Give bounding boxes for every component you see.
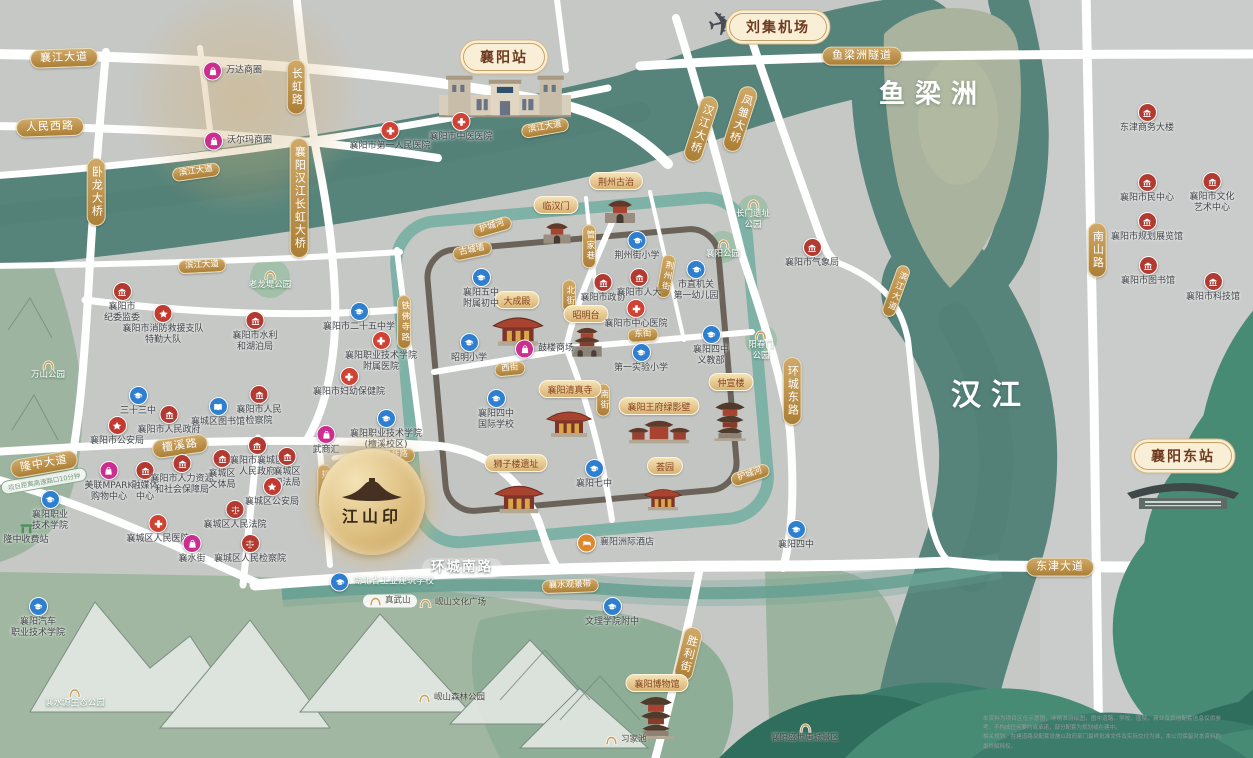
poi-label: 鼓楼商场 bbox=[538, 343, 574, 354]
poi-label: 市直机关 第一幼儿园 bbox=[673, 280, 718, 303]
gov-icon bbox=[247, 436, 266, 455]
shop-icon bbox=[203, 62, 222, 81]
poi-label: 襄阳汽车 职业技术学院 bbox=[11, 617, 65, 640]
poi-marker[interactable]: 襄阳市公安局 bbox=[90, 416, 144, 447]
road-label: 南山路 bbox=[1088, 223, 1107, 278]
park-icon bbox=[263, 269, 276, 280]
poi-label: 第一实验小学 bbox=[614, 363, 668, 374]
poi-marker[interactable]: 襄阳市人大 bbox=[616, 268, 661, 299]
park-label: 岘山文化广场 bbox=[435, 597, 486, 608]
poi-label: 襄阳市科技馆 bbox=[1186, 292, 1240, 303]
poi-marker[interactable]: 襄阳四中 国际学校 bbox=[478, 389, 514, 432]
poi-label: 文理学院附中 bbox=[585, 617, 639, 628]
road-label: 滨江大道 bbox=[171, 162, 220, 182]
poi-marker[interactable]: 襄阳市水利 和湖泊局 bbox=[232, 311, 277, 354]
poi-label: 美联MPARK 购物中心 bbox=[85, 481, 134, 504]
poi-marker[interactable]: 襄阳洲际酒店 bbox=[577, 534, 654, 553]
poi-label: 襄阳职业技术学院 (檀溪校区) bbox=[350, 429, 422, 452]
gov-icon bbox=[172, 454, 191, 473]
landmark-label[interactable]: 襄阳清真寺 bbox=[538, 380, 601, 398]
poi-label: 襄阳七中 bbox=[576, 479, 612, 490]
road-label: 滨江大道 bbox=[178, 258, 227, 274]
poi-marker[interactable]: 武商汇 bbox=[312, 425, 339, 456]
landmark-building bbox=[491, 477, 547, 516]
park-marker[interactable]: 岘山文化广场 bbox=[419, 597, 486, 608]
park-icon bbox=[369, 595, 382, 606]
poi-label: 襄城区人民法院 bbox=[203, 520, 266, 531]
landmark-label[interactable]: 临汉门 bbox=[533, 196, 578, 214]
park-label: 阳春门 公园 bbox=[748, 340, 774, 362]
poi-marker[interactable]: 沃尔玛商圈 bbox=[204, 132, 272, 151]
park-label: 老龙堤公园 bbox=[249, 280, 292, 291]
landmark-building bbox=[600, 193, 640, 223]
road-label: 东津大道 bbox=[1026, 558, 1094, 577]
station-label[interactable]: 襄阳站 bbox=[463, 43, 545, 71]
gov-icon bbox=[212, 449, 231, 468]
hospital-icon bbox=[626, 299, 645, 318]
school-icon bbox=[471, 268, 490, 287]
poi-marker[interactable]: 襄阳四中 bbox=[778, 520, 814, 551]
poi-label: 襄阳市妇幼保健院 bbox=[313, 387, 385, 398]
poi-marker[interactable]: 隆中收费站 bbox=[3, 523, 48, 546]
court-icon bbox=[240, 534, 259, 553]
gov-icon bbox=[629, 268, 648, 287]
hotel-icon bbox=[577, 534, 596, 553]
park-icon bbox=[746, 198, 759, 209]
park-label: 襄阳公园 bbox=[706, 249, 740, 260]
poi-label: 荆州街小学 bbox=[614, 251, 659, 262]
school-icon bbox=[786, 520, 805, 539]
poi-label: 东津商务大楼 bbox=[1120, 123, 1174, 134]
shop-icon bbox=[100, 461, 119, 480]
poi-label: 襄阳市第一人民医院 bbox=[349, 141, 430, 152]
gov-icon bbox=[159, 405, 178, 424]
poi-marker[interactable]: 荆州街小学 bbox=[614, 231, 659, 262]
poi-label: 万达商圈 bbox=[226, 65, 262, 76]
landmark-building bbox=[631, 689, 681, 739]
poi-label: 襄阳市中心医院 bbox=[604, 319, 667, 330]
landmark-label[interactable]: 狮子楼遗址 bbox=[484, 454, 547, 472]
road-label: 古城墙 bbox=[451, 240, 493, 262]
gov-icon bbox=[112, 282, 131, 301]
school-icon bbox=[459, 333, 478, 352]
park-label: 岘山森林公园 bbox=[434, 692, 485, 703]
school-icon bbox=[349, 302, 368, 321]
hospital-icon bbox=[371, 331, 390, 350]
school-icon bbox=[376, 409, 395, 428]
poi-label: 襄阳市民中心 bbox=[1120, 193, 1174, 204]
gov-icon bbox=[1202, 172, 1221, 191]
poi-label: 湖北省工业建筑学校 bbox=[353, 576, 434, 587]
road-label: 卧龙大桥 bbox=[87, 158, 106, 226]
park-marker[interactable]: 岘山森林公园 bbox=[418, 692, 485, 703]
station-label[interactable]: 刘集机场 bbox=[729, 13, 827, 41]
poi-label: 襄阳市公安局 bbox=[90, 436, 144, 447]
poi-marker[interactable]: 襄阳市人力资源 和社会保障局 bbox=[150, 454, 213, 497]
road-label: 鱼梁洲隧道 bbox=[822, 47, 902, 66]
park-marker[interactable]: 老龙堤公园 bbox=[249, 269, 292, 291]
toll-icon bbox=[19, 523, 33, 534]
school-icon bbox=[330, 573, 349, 592]
park-icon bbox=[419, 597, 432, 608]
poi-label: 襄阳市水利 和湖泊局 bbox=[232, 331, 277, 354]
park-label: 万山公园 bbox=[31, 370, 65, 381]
poi-label: 襄阳市图书馆 bbox=[1121, 276, 1175, 287]
disclaimer: 本资料为项目区位示意图，非精准测绘图，图中道路、学校、医院、商业及其他配套信息仅… bbox=[983, 715, 1221, 752]
station-label[interactable]: 襄阳东站 bbox=[1134, 442, 1232, 470]
park-icon bbox=[798, 722, 811, 733]
park-marker[interactable]: 阳春门 公园 bbox=[748, 329, 774, 362]
poi-marker[interactable]: 襄阳五中 附属初中 bbox=[463, 268, 499, 311]
poi-marker[interactable]: 襄阳市科技馆 bbox=[1186, 272, 1240, 303]
marker-layer: 襄江大道人民西路长虹路卧龙大桥襄阳汉江长虹大桥滨江大道滨江大道滨江大道滨江大道汉… bbox=[0, 0, 1253, 758]
school-icon bbox=[40, 490, 59, 509]
gov-icon bbox=[245, 311, 264, 330]
poi-marker[interactable]: 美联MPARK 购物中心 bbox=[85, 461, 134, 504]
water-label: 汉江 bbox=[951, 370, 1031, 414]
poi-marker[interactable]: 襄阳职业技术学院 (檀溪校区) bbox=[350, 409, 422, 452]
gov-icon bbox=[1137, 212, 1156, 231]
school-icon bbox=[631, 343, 650, 362]
gov-icon bbox=[1138, 256, 1157, 275]
park-marker[interactable]: 万山公园 bbox=[31, 359, 65, 381]
star-icon bbox=[153, 304, 172, 323]
poi-marker[interactable]: 襄阳市民中心 bbox=[1120, 173, 1174, 204]
road-label: 长虹路 bbox=[287, 60, 306, 115]
gov-icon bbox=[249, 385, 268, 404]
poi-label: 襄阳四中 bbox=[778, 540, 814, 551]
poi-marker[interactable]: 文理学院附中 bbox=[585, 597, 639, 628]
road-label: 护城河 bbox=[729, 462, 771, 487]
shop-icon bbox=[204, 132, 223, 151]
landmark-building bbox=[707, 395, 753, 441]
poi-marker[interactable]: 昭明小学 bbox=[451, 333, 487, 364]
poi-marker[interactable]: 襄阳市第一人民医院 bbox=[349, 121, 430, 152]
poi-marker[interactable]: 鼓楼商场 bbox=[515, 340, 574, 359]
road-label: 汉江大桥 bbox=[682, 94, 721, 164]
poi-marker[interactable]: 襄阳市图书馆 bbox=[1121, 256, 1175, 287]
book-icon bbox=[208, 397, 227, 416]
poi-label: 襄阳市人力资源 和社会保障局 bbox=[150, 474, 213, 497]
school-icon bbox=[584, 459, 603, 478]
park-label: 真武山 bbox=[385, 595, 411, 606]
shop-icon bbox=[182, 534, 201, 553]
shop-icon bbox=[316, 425, 335, 444]
gov-icon bbox=[277, 447, 296, 466]
road-label: 襄水观景带 bbox=[542, 578, 599, 594]
poi-label: 襄阳市规划展览馆 bbox=[1111, 232, 1183, 243]
poi-label: 襄阳五中 附属初中 bbox=[463, 288, 499, 311]
map-canvas: 襄江大道人民西路长虹路卧龙大桥襄阳汉江长虹大桥滨江大道滨江大道滨江大道滨江大道汉… bbox=[0, 0, 1253, 758]
poi-marker[interactable]: 第一实验小学 bbox=[614, 343, 668, 374]
road-label: 人民西路 bbox=[16, 116, 85, 137]
poi-label: 襄阳四中 国际学校 bbox=[478, 409, 514, 432]
park-marker[interactable]: 习家池 bbox=[605, 734, 647, 745]
project-name: 江山印 bbox=[342, 503, 402, 527]
road-label: 滨江大道 bbox=[520, 117, 570, 139]
park-label: 襄阳盛世唐城景区 bbox=[771, 733, 839, 744]
poi-label: 隆中收费站 bbox=[3, 535, 48, 546]
park-marker[interactable]: 襄阳盛世唐城景区 bbox=[771, 722, 839, 744]
poi-label: 武商汇 bbox=[312, 445, 339, 456]
gov-icon bbox=[802, 238, 821, 257]
project-logo: 江山印 bbox=[319, 449, 425, 555]
poi-marker[interactable]: 襄阳市二十五中学 bbox=[323, 302, 395, 333]
poi-label: 襄阳四中 义教部 bbox=[693, 345, 729, 368]
road-label: 滨江大道 bbox=[880, 263, 911, 318]
road-label: 凤雏大桥 bbox=[721, 84, 760, 154]
poi-marker[interactable]: 襄阳市人民 检察院 bbox=[236, 385, 281, 428]
school-icon bbox=[602, 597, 621, 616]
poi-label: 襄阳市文化 艺术中心 bbox=[1189, 192, 1234, 215]
poi-label: 襄阳市消防救援支队 特勤大队 bbox=[122, 324, 203, 347]
school-icon bbox=[686, 260, 705, 279]
poi-marker[interactable]: 襄阳市规划展览馆 bbox=[1111, 212, 1183, 243]
road-label: 管家巷 bbox=[582, 224, 596, 268]
poi-marker[interactable]: 襄城区人民法院 bbox=[203, 500, 266, 531]
school-icon bbox=[701, 325, 720, 344]
park-icon bbox=[605, 734, 618, 745]
poi-label: 襄水街 bbox=[178, 554, 205, 565]
shop-icon bbox=[515, 340, 534, 359]
park-label: 习家池 bbox=[621, 734, 647, 745]
landmark-building bbox=[626, 416, 692, 447]
landmark-label[interactable]: 大成殿 bbox=[494, 291, 539, 309]
school-icon bbox=[28, 597, 47, 616]
poi-marker[interactable]: 襄水街 bbox=[178, 534, 205, 565]
park-label: 襄水源生态公园 bbox=[45, 698, 105, 709]
hospital-icon bbox=[339, 367, 358, 386]
poi-label: 沃尔玛商圈 bbox=[227, 135, 272, 146]
park-icon bbox=[754, 329, 767, 340]
landmark-label[interactable]: 襄阳博物馆 bbox=[625, 674, 688, 692]
gov-icon bbox=[1137, 103, 1156, 122]
park-marker[interactable]: 长门遗址 公园 bbox=[736, 198, 770, 231]
landmark-building bbox=[641, 482, 685, 512]
star-icon bbox=[262, 477, 281, 496]
school-icon bbox=[627, 231, 646, 250]
poi-marker[interactable]: 襄阳市中心医院 bbox=[604, 299, 667, 330]
park-icon bbox=[41, 359, 54, 370]
poi-marker[interactable]: 襄城区人民检察院 bbox=[214, 534, 286, 565]
landmark-label[interactable]: 昭明台 bbox=[563, 305, 608, 323]
poi-label: 襄阳洲际酒店 bbox=[600, 537, 654, 548]
poi-marker[interactable]: 襄阳市中医医院 bbox=[429, 112, 492, 143]
road-label: 环城东路 bbox=[783, 357, 802, 425]
landmark-label[interactable]: 荟园 bbox=[647, 457, 683, 475]
road-label: 西街 bbox=[494, 361, 526, 378]
gov-icon bbox=[1137, 173, 1156, 192]
park-icon bbox=[418, 692, 431, 703]
park-marker[interactable]: 襄阳公园 bbox=[706, 238, 740, 260]
poi-marker[interactable]: 襄阳汽车 职业技术学院 bbox=[11, 597, 65, 640]
poi-marker[interactable]: 万达商圈 bbox=[203, 62, 262, 81]
landmark-building bbox=[1123, 473, 1243, 513]
poi-label: 襄阳市人大 bbox=[616, 288, 661, 299]
landmark-label[interactable]: 荆州古治 bbox=[589, 172, 643, 190]
park-label: 长门遗址 公园 bbox=[736, 209, 770, 231]
hospital-icon bbox=[451, 112, 470, 131]
school-icon bbox=[486, 389, 505, 408]
road-label: 襄江大道 bbox=[30, 47, 99, 68]
road-label: 护城河 bbox=[471, 215, 513, 239]
poi-marker[interactable]: 襄阳四中 义教部 bbox=[693, 325, 729, 368]
star-icon bbox=[107, 416, 126, 435]
landmark-label[interactable]: 仲宣楼 bbox=[708, 373, 753, 391]
gov-icon bbox=[1203, 272, 1222, 291]
court-icon bbox=[225, 500, 244, 519]
water-label: 鱼梁洲 bbox=[879, 74, 987, 111]
poi-marker[interactable]: 市直机关 第一幼儿园 bbox=[673, 260, 718, 303]
landmark-building bbox=[543, 403, 595, 439]
poi-marker[interactable]: 东津商务大楼 bbox=[1120, 103, 1174, 134]
school-icon bbox=[128, 386, 147, 405]
poi-label: 襄阳市中医医院 bbox=[429, 132, 492, 143]
park-marker[interactable]: 襄水源生态公园 bbox=[45, 687, 105, 709]
road-label: 襄阳汉江长虹大桥 bbox=[290, 138, 309, 258]
park-icon bbox=[68, 687, 81, 698]
poi-marker[interactable]: 襄阳市消防救援支队 特勤大队 bbox=[122, 304, 203, 347]
hospital-icon bbox=[380, 121, 399, 140]
poi-marker[interactable]: 襄阳市文化 艺术中心 bbox=[1189, 172, 1234, 215]
poi-label: 昭明小学 bbox=[451, 353, 487, 364]
poi-label: 襄城区人民检察院 bbox=[214, 554, 286, 565]
poi-label: 襄阳市人民 检察院 bbox=[236, 405, 281, 428]
hospital-icon bbox=[148, 514, 167, 533]
park-marker[interactable]: 真武山 bbox=[363, 594, 417, 607]
park-icon bbox=[716, 238, 729, 249]
poi-marker[interactable]: 襄阳市气象局 bbox=[785, 238, 839, 269]
gov-icon bbox=[593, 273, 612, 292]
poi-label: 襄阳市气象局 bbox=[785, 258, 839, 269]
landmark-label[interactable]: 襄阳王府绿影壁 bbox=[618, 397, 699, 415]
poi-marker[interactable]: 襄阳市妇幼保健院 bbox=[313, 367, 385, 398]
landmark-building bbox=[539, 217, 575, 244]
poi-marker[interactable]: 湖北省工业建筑学校 bbox=[330, 573, 434, 592]
logo-roof-icon bbox=[340, 477, 404, 501]
poi-marker[interactable]: 襄阳七中 bbox=[576, 459, 612, 490]
